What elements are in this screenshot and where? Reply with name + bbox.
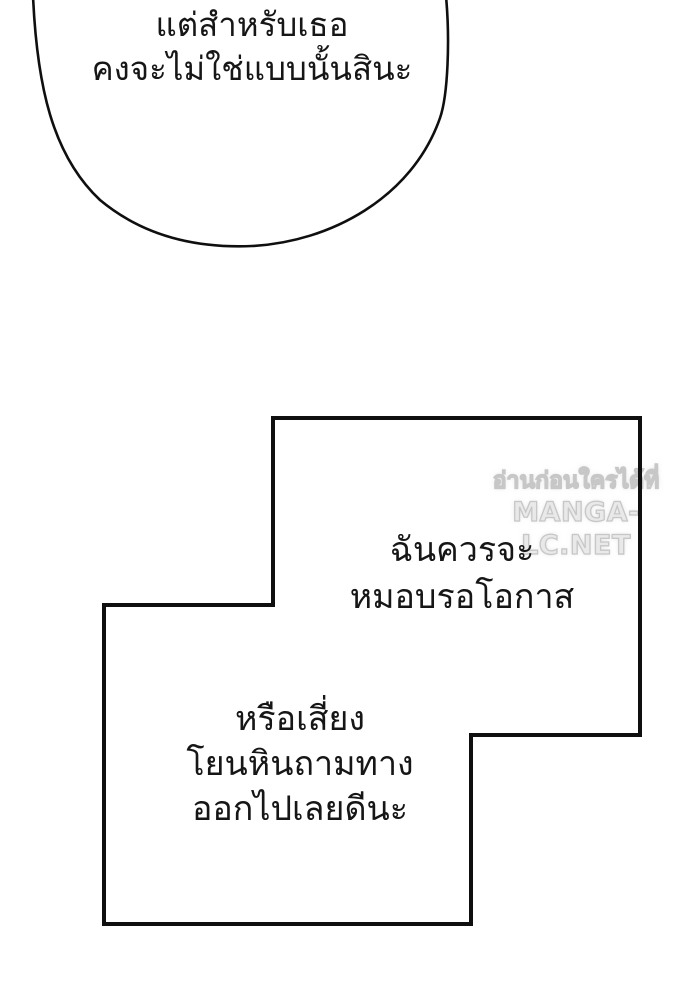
thought-text-upper: ฉันควรจะ หมอบรอโอกาส: [312, 527, 612, 621]
thought-text-lower: หรือเสี่ยง โยนหินถามทาง ออกไปเลยดีนะ: [148, 697, 452, 832]
speech-bubble-text: แต่สำหรับเธอ คงจะไม่ใช่แบบนั้นสินะ: [32, 3, 472, 91]
watermark-thai-text: อ่านก่อนใครได้ที่: [464, 466, 688, 496]
manga-page: อ่านก่อนใครได้ที่ MANGA-LC.NET แต่สำหรับ…: [0, 0, 690, 1000]
